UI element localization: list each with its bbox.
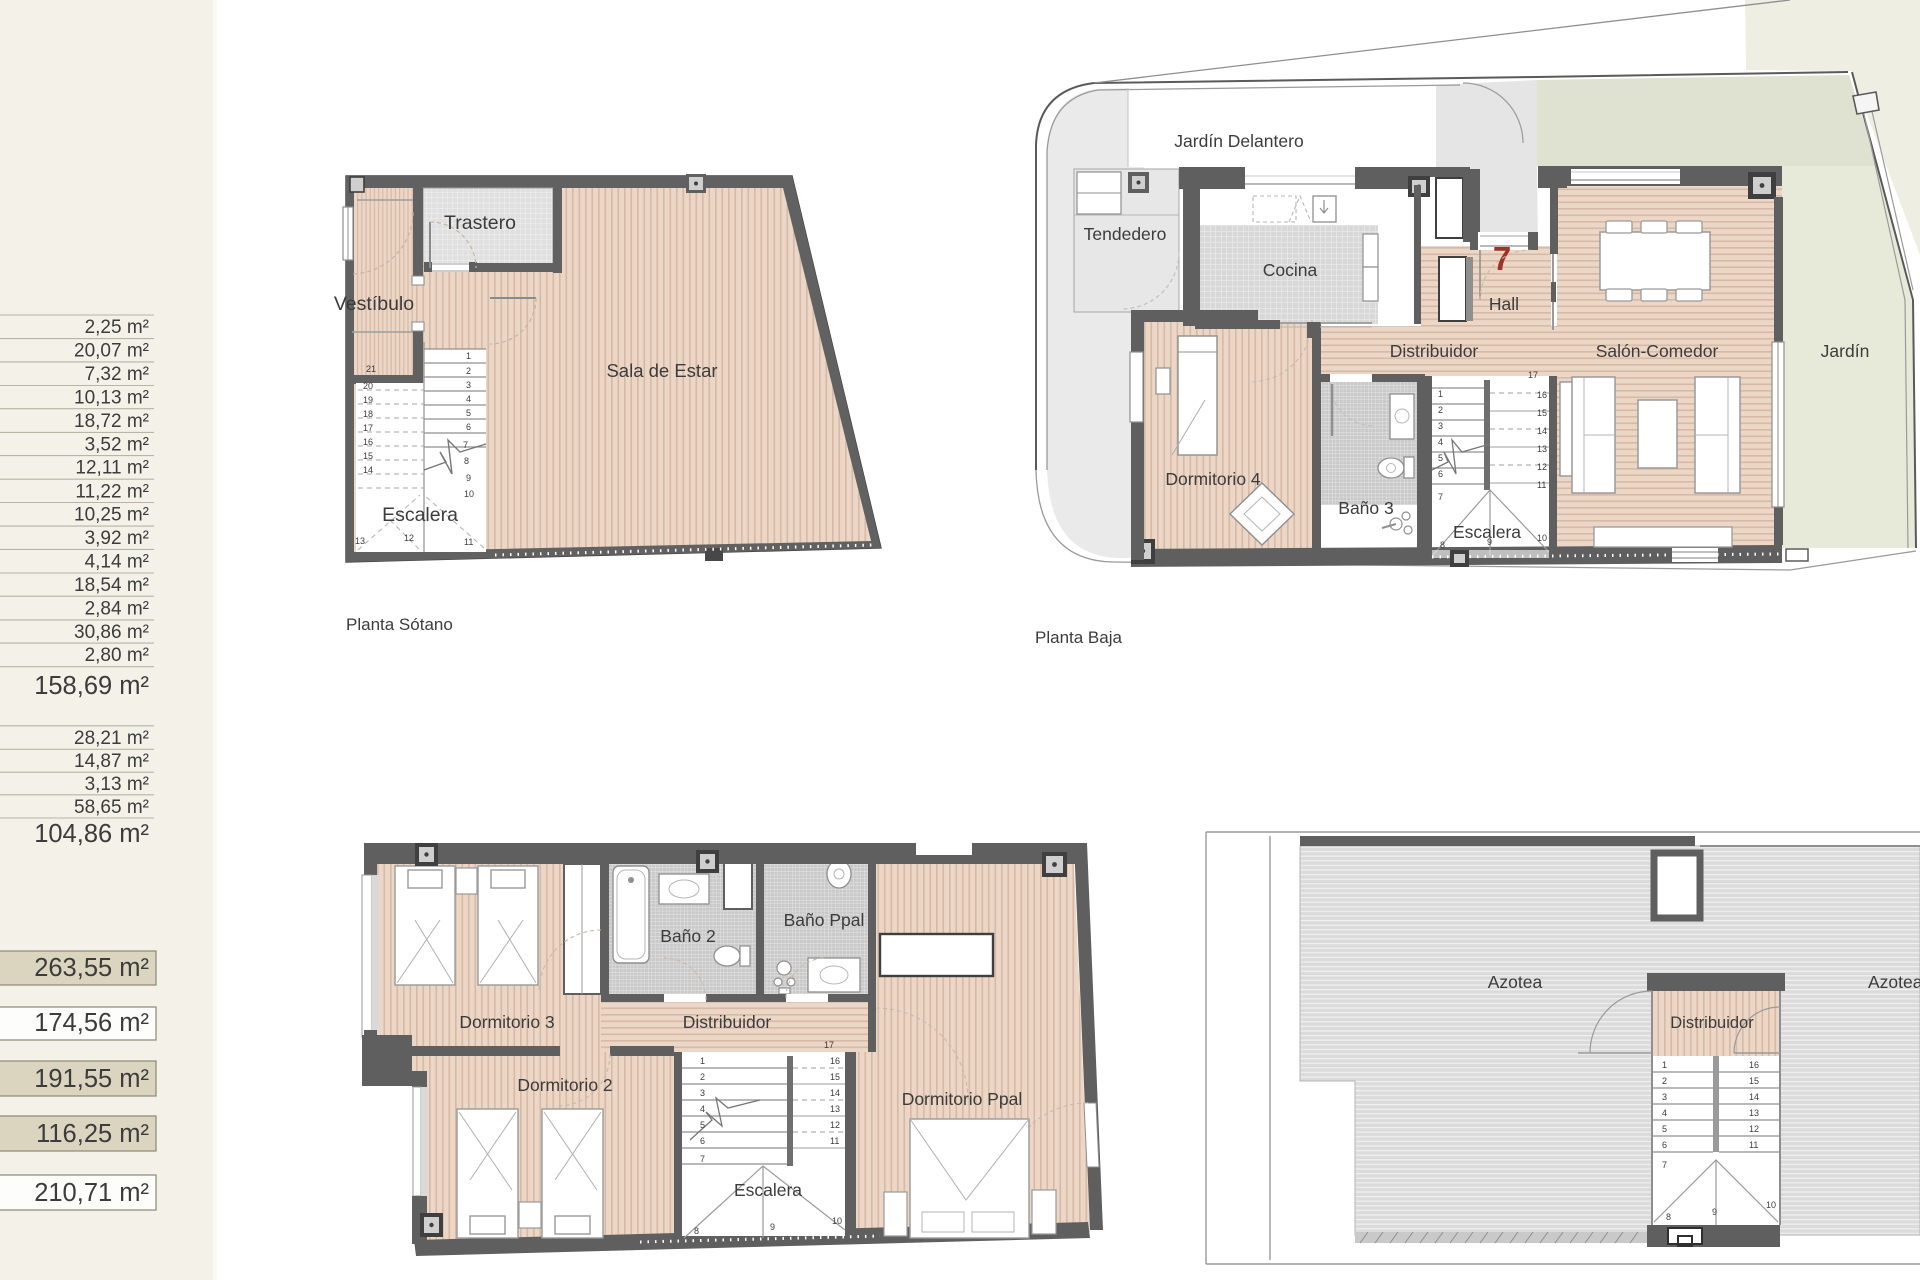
svg-text:Azotea: Azotea: [1488, 972, 1543, 992]
svg-text:Hall: Hall: [1489, 294, 1519, 314]
svg-text:Dormitorio 3: Dormitorio 3: [459, 1012, 554, 1032]
svg-text:18: 18: [363, 409, 373, 419]
svg-text:12: 12: [1537, 462, 1547, 472]
svg-text:14,87 m²: 14,87 m²: [74, 751, 149, 772]
svg-text:19: 19: [363, 395, 373, 405]
svg-text:Planta Sótano: Planta Sótano: [346, 615, 453, 634]
svg-text:11: 11: [464, 537, 473, 547]
svg-text:12: 12: [404, 533, 414, 543]
svg-text:Salón-Comedor: Salón-Comedor: [1596, 341, 1719, 361]
svg-text:14: 14: [363, 465, 373, 475]
svg-text:11: 11: [830, 1136, 839, 1146]
svg-text:17: 17: [824, 1040, 834, 1050]
svg-text:Distribuidor: Distribuidor: [1670, 1014, 1754, 1032]
svg-text:Distribuidor: Distribuidor: [1390, 341, 1479, 361]
svg-text:3: 3: [466, 380, 471, 390]
svg-text:Baño 3: Baño 3: [1338, 498, 1393, 518]
svg-text:14: 14: [1749, 1092, 1759, 1102]
svg-text:17: 17: [1528, 370, 1538, 380]
svg-text:30,86 m²: 30,86 m²: [74, 622, 149, 643]
svg-text:16: 16: [830, 1056, 840, 1066]
svg-text:8: 8: [464, 456, 469, 466]
svg-text:15: 15: [363, 451, 373, 461]
svg-text:7: 7: [1662, 1160, 1667, 1170]
svg-text:Dormitorio 2: Dormitorio 2: [517, 1075, 612, 1095]
svg-text:2,84 m²: 2,84 m²: [85, 598, 149, 619]
svg-text:4: 4: [1438, 437, 1443, 447]
svg-text:Cocina: Cocina: [1263, 260, 1318, 280]
svg-text:3: 3: [700, 1088, 705, 1098]
svg-text:7: 7: [700, 1154, 705, 1164]
svg-text:Jardín Delantero: Jardín Delantero: [1174, 131, 1303, 151]
svg-text:7: 7: [463, 440, 468, 450]
svg-text:28,21 m²: 28,21 m²: [74, 728, 149, 749]
svg-text:2: 2: [700, 1072, 705, 1082]
svg-text:13: 13: [1537, 444, 1547, 454]
svg-text:Baño Ppal: Baño Ppal: [784, 910, 865, 930]
svg-text:116,25 m²: 116,25 m²: [36, 1120, 149, 1148]
svg-text:7: 7: [1438, 492, 1443, 502]
svg-text:10,25 m²: 10,25 m²: [74, 505, 149, 526]
svg-text:3: 3: [1662, 1092, 1667, 1102]
svg-text:5: 5: [1438, 453, 1443, 463]
svg-text:13: 13: [1749, 1108, 1759, 1118]
svg-text:4: 4: [1662, 1108, 1667, 1118]
svg-text:191,55 m²: 191,55 m²: [34, 1065, 149, 1093]
svg-text:15: 15: [1749, 1076, 1759, 1086]
svg-text:12,11 m²: 12,11 m²: [75, 458, 149, 479]
svg-text:Azotea: Azotea: [1868, 972, 1920, 992]
svg-text:9: 9: [1712, 1207, 1717, 1217]
svg-text:20: 20: [363, 381, 373, 391]
svg-text:Jardín: Jardín: [1821, 341, 1870, 361]
svg-text:10,13 m²: 10,13 m²: [74, 388, 149, 409]
svg-text:8: 8: [1666, 1212, 1671, 1222]
svg-text:Trastero: Trastero: [444, 212, 516, 234]
svg-text:11,22 m²: 11,22 m²: [75, 481, 149, 502]
svg-text:263,55 m²: 263,55 m²: [34, 954, 149, 982]
svg-text:Planta Baja: Planta Baja: [1035, 628, 1122, 647]
svg-text:9: 9: [770, 1222, 775, 1232]
svg-text:16: 16: [363, 437, 373, 447]
svg-text:6: 6: [1662, 1140, 1667, 1150]
svg-text:Sala de Estar: Sala de Estar: [606, 360, 717, 381]
svg-text:Escalera: Escalera: [1453, 522, 1521, 542]
svg-text:16: 16: [1749, 1060, 1759, 1070]
svg-text:5: 5: [700, 1120, 705, 1130]
svg-text:7: 7: [1493, 240, 1511, 277]
svg-text:2: 2: [466, 366, 471, 376]
svg-text:1: 1: [1662, 1060, 1667, 1070]
svg-text:10: 10: [1537, 533, 1547, 543]
svg-text:7,32 m²: 7,32 m²: [85, 364, 149, 385]
svg-text:174,56 m²: 174,56 m²: [34, 1009, 149, 1037]
svg-text:Tendedero: Tendedero: [1084, 224, 1167, 244]
svg-text:6: 6: [466, 422, 471, 432]
svg-text:3,52 m²: 3,52 m²: [85, 434, 149, 455]
svg-text:10: 10: [464, 489, 474, 499]
svg-text:12: 12: [1749, 1124, 1759, 1134]
svg-text:13: 13: [355, 536, 365, 546]
svg-text:6: 6: [700, 1136, 705, 1146]
svg-text:4: 4: [466, 394, 471, 404]
svg-text:20,07 m²: 20,07 m²: [74, 341, 149, 362]
svg-text:Vestíbulo: Vestíbulo: [334, 293, 414, 315]
svg-text:21: 21: [366, 364, 376, 374]
svg-text:11: 11: [1537, 480, 1546, 490]
svg-text:14: 14: [1537, 426, 1547, 436]
svg-text:3: 3: [1438, 421, 1443, 431]
svg-text:Baño 2: Baño 2: [660, 926, 715, 946]
svg-text:9: 9: [466, 473, 471, 483]
svg-text:5: 5: [1662, 1124, 1667, 1134]
svg-text:10: 10: [1766, 1200, 1776, 1210]
svg-text:18,54 m²: 18,54 m²: [74, 575, 149, 596]
svg-text:Dormitorio Ppal: Dormitorio Ppal: [902, 1089, 1023, 1109]
svg-text:10: 10: [832, 1216, 842, 1226]
svg-text:5: 5: [466, 408, 471, 418]
svg-text:210,71 m²: 210,71 m²: [34, 1179, 149, 1207]
svg-text:8: 8: [1440, 540, 1445, 550]
svg-text:2,25 m²: 2,25 m²: [85, 317, 149, 338]
svg-text:15: 15: [1537, 408, 1547, 418]
svg-text:2: 2: [1438, 405, 1443, 415]
svg-text:4: 4: [700, 1104, 705, 1114]
svg-text:12: 12: [830, 1120, 840, 1130]
svg-text:18,72 m²: 18,72 m²: [74, 411, 149, 432]
svg-text:11: 11: [1749, 1140, 1758, 1150]
svg-text:Dormitorio 4: Dormitorio 4: [1165, 469, 1261, 489]
svg-text:4,14 m²: 4,14 m²: [85, 552, 149, 573]
svg-text:14: 14: [830, 1088, 840, 1098]
svg-text:13: 13: [830, 1104, 840, 1114]
svg-text:2: 2: [1662, 1076, 1667, 1086]
svg-text:1: 1: [1438, 389, 1443, 399]
svg-text:1: 1: [700, 1056, 705, 1066]
svg-text:8: 8: [694, 1226, 699, 1236]
svg-text:Distribuidor: Distribuidor: [683, 1012, 772, 1032]
svg-text:Escalera: Escalera: [382, 504, 458, 526]
svg-text:15: 15: [830, 1072, 840, 1082]
svg-text:16: 16: [1537, 390, 1547, 400]
svg-text:Escalera: Escalera: [734, 1180, 802, 1200]
svg-text:158,69 m²: 158,69 m²: [34, 672, 149, 700]
svg-text:3,13 m²: 3,13 m²: [85, 774, 149, 795]
svg-text:3,92 m²: 3,92 m²: [85, 528, 149, 549]
svg-text:2,80 m²: 2,80 m²: [85, 645, 149, 666]
svg-text:17: 17: [363, 423, 373, 433]
svg-text:104,86 m²: 104,86 m²: [34, 820, 149, 848]
svg-text:1: 1: [466, 351, 471, 361]
svg-text:6: 6: [1438, 469, 1443, 479]
svg-text:58,65 m²: 58,65 m²: [74, 797, 149, 818]
